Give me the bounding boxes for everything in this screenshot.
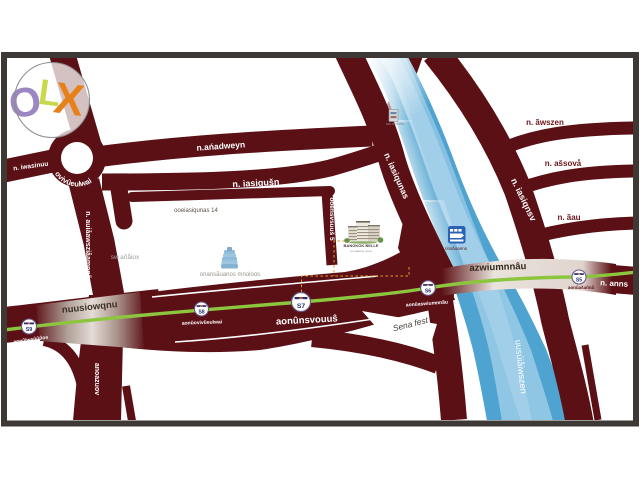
svg-text:sw.añåiox: sw.añåiox [111, 253, 140, 261]
svg-text:S5: S5 [576, 277, 582, 283]
svg-text:n. ašsovå: n. ašsovå [545, 159, 582, 168]
svg-text:onansãuanos mnoioos: onansãuanos mnoioos [200, 272, 260, 278]
svg-text:aonûašaňnå: aonûašaňnå [568, 284, 595, 290]
svg-text:n. ãau: n. ãau [557, 213, 580, 222]
svg-text:on saonns nnou: on saonns nnou [350, 249, 372, 253]
svg-text:BANGKOK BELLE: BANGKOK BELLE [344, 243, 379, 248]
svg-text:n. auiåawsziåamnnãu: n. auiåawsziåamnnãu [84, 211, 92, 283]
svg-text:azwiumnnâu: azwiumnnâu [469, 261, 527, 274]
svg-text:n. anns: n. anns [600, 278, 629, 288]
svg-text:ooeiasiqunas 14: ooeiasiqunas 14 [174, 208, 218, 214]
svg-text:S7: S7 [297, 303, 306, 310]
svg-text:S9: S9 [26, 327, 33, 333]
svg-text:S8: S8 [198, 309, 204, 315]
svg-text:S6: S6 [425, 289, 431, 295]
svg-text:anoazuov: anoazuov [93, 363, 100, 395]
svg-text:ooensvsuuš 5: ooensvsuuš 5 [328, 197, 335, 241]
svg-text:n. ãwszen: n. ãwszen [526, 118, 564, 127]
svg-text:rinsåoanns: rinsåoanns [445, 245, 468, 251]
svg-text:sw.mnnãu: sw.mnnãu [386, 121, 404, 126]
